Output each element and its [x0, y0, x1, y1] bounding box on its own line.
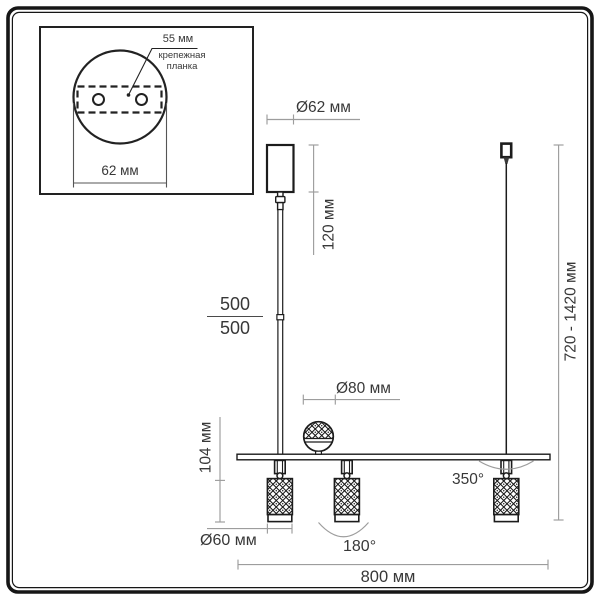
dim-canopy-diameter-label: Ø62 мм — [296, 99, 351, 117]
bracket-label-line2: планка — [150, 61, 214, 72]
canopy-joint — [276, 197, 285, 203]
mounting-bracket-dashed — [78, 87, 162, 113]
bracket-label-line1: крепежная — [150, 50, 214, 61]
rotation-angle-label: 350° — [452, 471, 484, 489]
rod — [278, 210, 283, 455]
bracket-hole-left — [93, 94, 104, 105]
shade-3-ring — [494, 515, 518, 522]
technical-drawing-pendant-light: 55 мм крепежная планка 62 мм Ø62 мм 120 … — [0, 0, 600, 600]
rod-coupler — [277, 315, 284, 320]
shade-2-ring — [335, 515, 359, 522]
dim-head-drop-line — [215, 417, 225, 522]
shade-2-body — [334, 479, 359, 515]
canopy — [267, 145, 294, 192]
dim-head-drop-label: 104 мм — [197, 419, 214, 477]
track-bar — [237, 454, 550, 460]
spot-head-2 — [334, 460, 359, 521]
drawing-linework — [0, 0, 600, 600]
base-width-label: 62 мм — [92, 163, 148, 178]
decorative-ball — [302, 420, 335, 454]
shade-1-body — [267, 479, 292, 515]
fixture — [237, 144, 550, 522]
rod-section-top-label: 500 — [207, 294, 263, 317]
spot-head-1 — [267, 460, 292, 521]
bracket-hole-right — [136, 94, 147, 105]
shade-3-body — [494, 479, 519, 515]
dim-height-range-label: 720 - 1420 мм — [562, 255, 579, 367]
dim-canopy-height-label: 120 мм — [320, 195, 337, 253]
tilt-angle-label: 180° — [343, 538, 376, 556]
hole-pitch-label: 55 мм — [156, 33, 200, 45]
dim-rod-sections-label: 500 500 — [207, 294, 263, 339]
shade-1-ring — [268, 515, 292, 522]
rod-section-bottom-label: 500 — [207, 317, 263, 339]
dim-shade-diameter-label: Ø60 мм — [200, 532, 257, 550]
dim-ball-diameter-label: Ø80 мм — [336, 380, 391, 398]
canopy-joint-lower — [278, 203, 283, 210]
dim-bar-length-label: 800 мм — [338, 568, 438, 587]
tilt-arc — [319, 523, 369, 537]
dim-canopy-height-line — [309, 145, 319, 255]
cable-grip — [501, 144, 511, 158]
bracket-label: крепежная планка — [150, 50, 214, 72]
